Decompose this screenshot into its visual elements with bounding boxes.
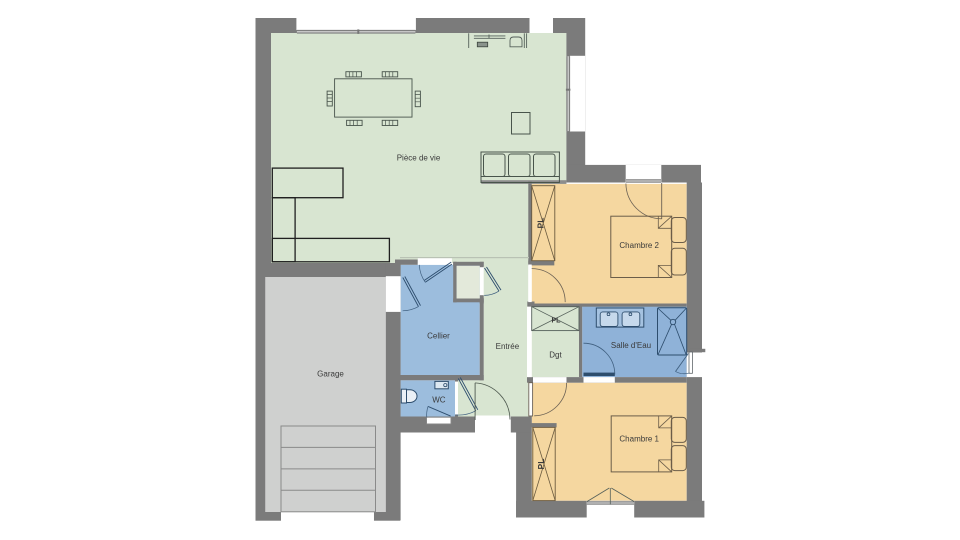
svg-text:Garage: Garage bbox=[317, 370, 344, 379]
svg-text:WC: WC bbox=[432, 395, 446, 404]
svg-text:Chambre 2: Chambre 2 bbox=[619, 241, 659, 250]
svg-text:PL: PL bbox=[536, 459, 546, 470]
svg-text:Pièce de vie: Pièce de vie bbox=[397, 154, 441, 163]
svg-text:Dgt: Dgt bbox=[549, 351, 562, 360]
svg-text:Entrée: Entrée bbox=[496, 342, 520, 351]
svg-text:Chambre 1: Chambre 1 bbox=[619, 435, 659, 444]
svg-text:PL: PL bbox=[552, 317, 562, 324]
svg-text:Cellier: Cellier bbox=[427, 332, 450, 341]
svg-text:PL: PL bbox=[536, 218, 546, 229]
svg-text:Salle d'Eau: Salle d'Eau bbox=[611, 341, 651, 350]
